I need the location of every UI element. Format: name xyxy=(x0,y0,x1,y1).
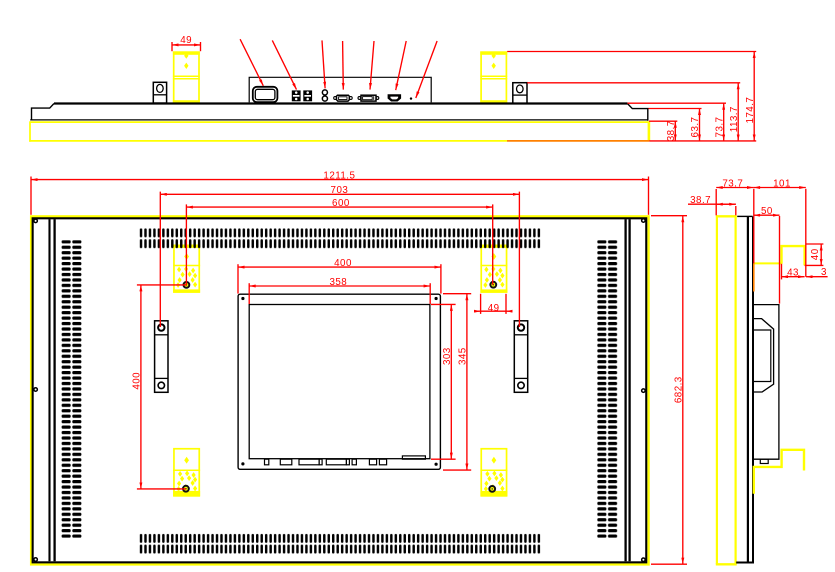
svg-text:174.7: 174.7 xyxy=(745,97,756,124)
svg-text:345: 345 xyxy=(458,347,469,365)
svg-text:43: 43 xyxy=(787,267,799,278)
svg-text:49: 49 xyxy=(488,303,500,314)
svg-text:703: 703 xyxy=(331,185,349,196)
svg-text:73.7: 73.7 xyxy=(714,117,725,138)
svg-text:1211.5: 1211.5 xyxy=(323,170,355,181)
svg-text:49: 49 xyxy=(180,35,192,46)
svg-text:400: 400 xyxy=(334,258,352,269)
svg-text:682.3: 682.3 xyxy=(673,376,684,403)
svg-text:3: 3 xyxy=(821,267,827,278)
svg-text:38.7: 38.7 xyxy=(690,195,711,206)
svg-text:63.7: 63.7 xyxy=(690,117,701,138)
svg-text:73.7: 73.7 xyxy=(722,178,743,189)
svg-text:38.7: 38.7 xyxy=(666,120,677,141)
svg-text:40: 40 xyxy=(810,248,821,260)
svg-text:358: 358 xyxy=(329,277,347,288)
svg-text:50: 50 xyxy=(761,206,773,217)
svg-text:400: 400 xyxy=(132,372,143,390)
svg-text:600: 600 xyxy=(332,198,350,209)
svg-text:113.7: 113.7 xyxy=(729,106,740,132)
svg-text:303: 303 xyxy=(442,347,453,365)
svg-text:101: 101 xyxy=(773,178,791,189)
